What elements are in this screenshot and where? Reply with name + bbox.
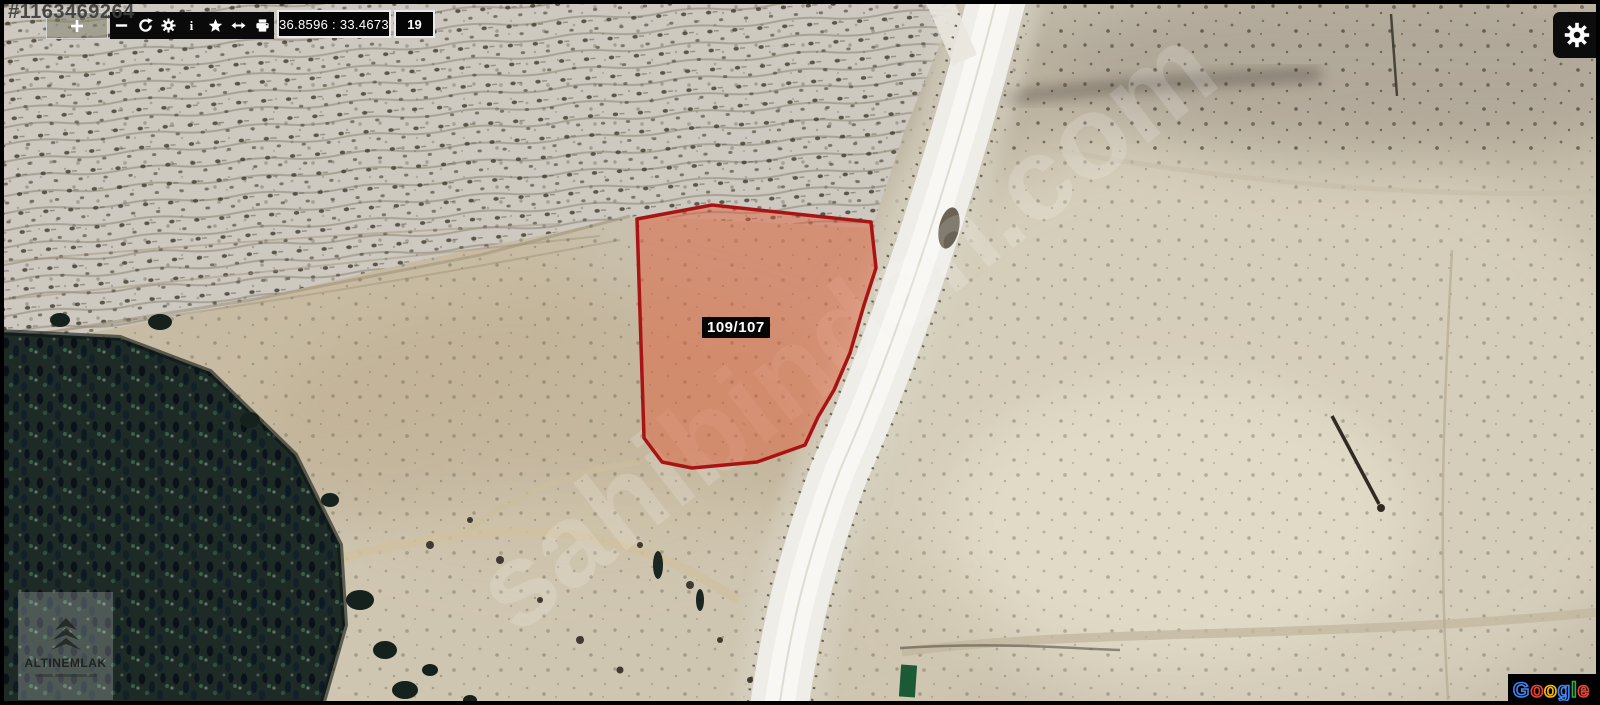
refresh-icon [138, 18, 153, 33]
satellite-map[interactable]: sahibinden.com [0, 0, 1600, 705]
print-icon [255, 18, 270, 33]
settings-panel-button[interactable] [1553, 12, 1600, 58]
google-letter: o [1531, 679, 1544, 702]
plus-icon [69, 18, 85, 34]
print-button[interactable] [251, 12, 273, 39]
google-logo: G o o g l e [1508, 674, 1600, 705]
google-letter: l [1571, 679, 1577, 702]
google-letter: e [1578, 679, 1590, 702]
settings-button[interactable] [158, 12, 180, 39]
gear-icon [1564, 22, 1590, 48]
minus-icon [114, 18, 129, 33]
favorite-button[interactable] [204, 12, 226, 39]
google-letter: G [1513, 679, 1529, 702]
refresh-button[interactable] [134, 12, 156, 39]
zoom-level-display: 19 [394, 10, 435, 38]
google-letter: g [1558, 679, 1571, 702]
toolbar-icon-bar: i [110, 12, 274, 39]
google-wordmark-icon: G o o g l e [1510, 676, 1598, 704]
map-viewport: sahibinden.com 109/107 [0, 0, 1600, 705]
svg-text:i: i [190, 18, 194, 33]
star-icon [208, 18, 223, 33]
measure-button[interactable] [228, 12, 250, 39]
info-button[interactable]: i [181, 12, 203, 39]
zoom-out-button[interactable] [111, 12, 133, 39]
measure-arrow-icon [231, 18, 246, 33]
info-icon: i [184, 18, 199, 33]
gear-icon [161, 18, 176, 33]
google-letter: o [1544, 679, 1557, 702]
zoom-in-button[interactable] [46, 12, 108, 39]
coordinates-display: 36.8596 : 33.4673 [277, 10, 391, 38]
cypress-tree [696, 589, 704, 611]
